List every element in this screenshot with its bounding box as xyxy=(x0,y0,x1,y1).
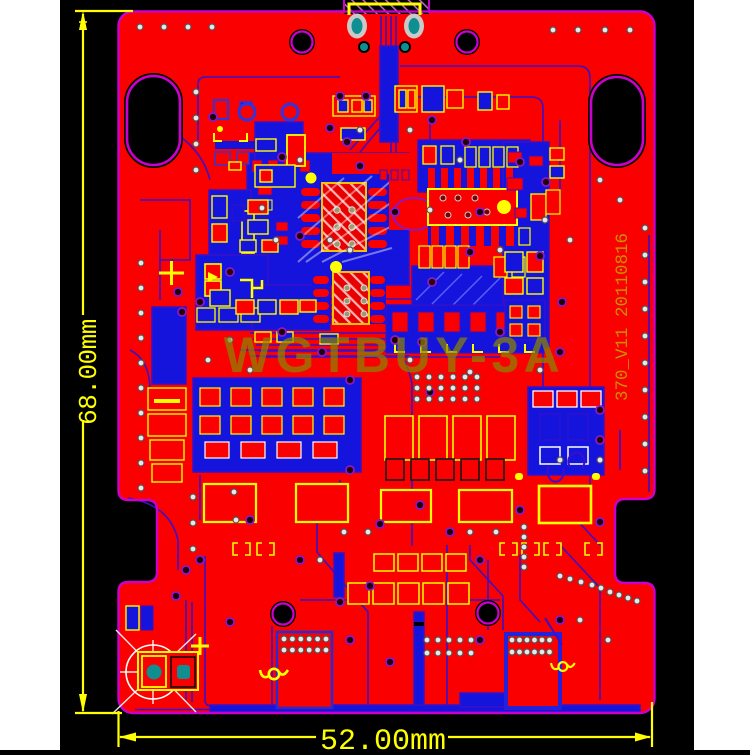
svg-text:370_V11 20110816: 370_V11 20110816 xyxy=(613,233,633,401)
svg-text:52.00mm: 52.00mm xyxy=(320,725,446,750)
svg-text:WGTBUY-3A: WGTBUY-3A xyxy=(224,327,565,383)
svg-text:68.00mm: 68.00mm xyxy=(74,319,104,425)
